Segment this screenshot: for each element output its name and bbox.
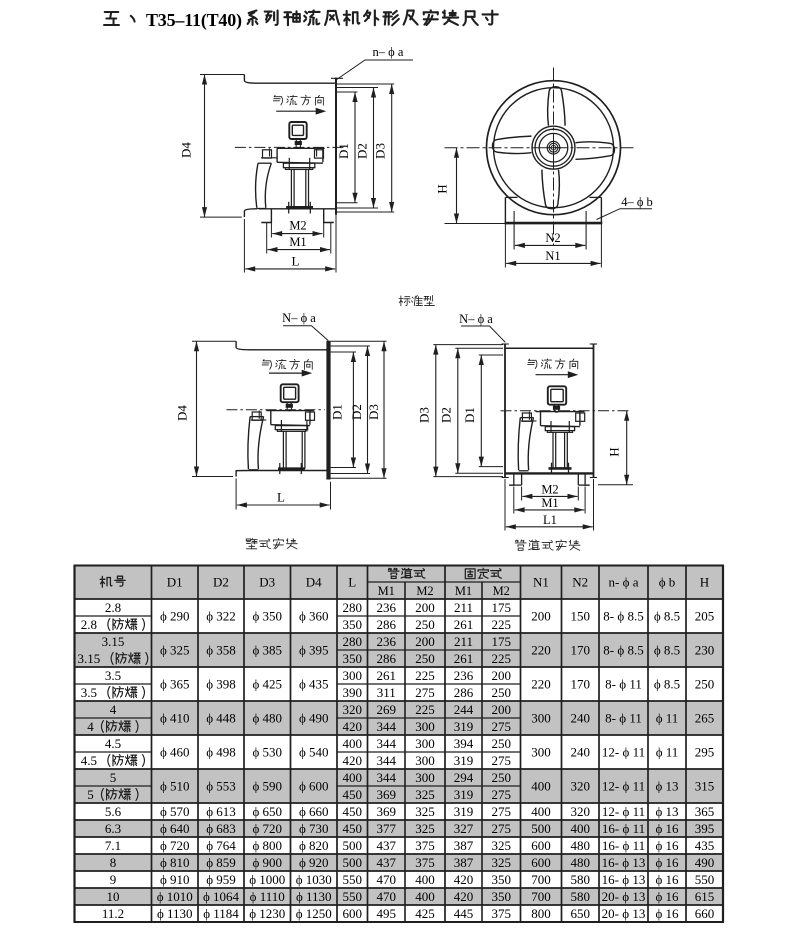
svg-text:2.8: 2.8: [105, 600, 121, 615]
svg-text:250: 250: [695, 677, 715, 692]
svg-text:ϕ 1184: ϕ 1184: [203, 906, 239, 921]
svg-text:3.15: 3.15: [78, 651, 101, 666]
svg-text:325: 325: [415, 787, 435, 802]
svg-text:ϕ 683: ϕ 683: [206, 821, 236, 836]
svg-text:ϕ 360: ϕ 360: [299, 609, 329, 624]
svg-text:175: 175: [492, 600, 512, 615]
svg-text:D1: D1: [330, 404, 345, 420]
svg-text:295: 295: [695, 745, 715, 760]
svg-text:ϕ 16: ϕ 16: [655, 821, 679, 836]
svg-text:11.2: 11.2: [102, 906, 124, 921]
svg-text:ϕ 650: ϕ 650: [252, 804, 282, 819]
svg-text:ϕ 730: ϕ 730: [299, 821, 329, 836]
svg-text:236: 236: [377, 600, 397, 615]
svg-text:280: 280: [343, 634, 363, 649]
svg-text:3.15: 3.15: [102, 634, 125, 649]
svg-text:ϕ 720: ϕ 720: [252, 821, 282, 836]
svg-text:D4: D4: [175, 405, 190, 421]
svg-text:ϕ 570: ϕ 570: [160, 804, 190, 819]
svg-text:5: 5: [87, 787, 94, 802]
svg-text:n- ϕ a: n- ϕ a: [609, 575, 639, 590]
svg-text:ϕ 1110: ϕ 1110: [250, 889, 285, 904]
svg-text:550: 550: [343, 889, 363, 904]
svg-text:ϕ 460: ϕ 460: [160, 745, 190, 760]
svg-text:294: 294: [454, 770, 474, 785]
svg-text:ϕ 8.5: ϕ 8.5: [654, 677, 680, 692]
svg-text:250: 250: [492, 770, 512, 785]
svg-text:550: 550: [695, 872, 715, 887]
svg-text:387: 387: [454, 855, 474, 870]
svg-text:ϕ 8.5: ϕ 8.5: [654, 609, 680, 624]
svg-text:ϕ 530: ϕ 530: [252, 745, 282, 760]
svg-text:ϕ b: ϕ b: [659, 575, 676, 590]
svg-text:H: H: [700, 575, 709, 590]
svg-text:300: 300: [415, 736, 435, 751]
svg-text:ϕ 660: ϕ 660: [299, 804, 329, 819]
svg-text:250: 250: [415, 651, 435, 666]
svg-text:ϕ 448: ϕ 448: [206, 711, 236, 726]
svg-text:240: 240: [571, 711, 591, 726]
svg-text:265: 265: [695, 711, 715, 726]
svg-text:ϕ 810: ϕ 810: [160, 855, 190, 870]
svg-text:5.6: 5.6: [105, 804, 122, 819]
svg-text:16- ϕ 11: 16- ϕ 11: [602, 838, 645, 853]
svg-text:344: 344: [377, 770, 397, 785]
svg-text:ϕ 590: ϕ 590: [252, 779, 282, 794]
svg-text:16- ϕ 13: 16- ϕ 13: [602, 872, 646, 887]
svg-text:8- ϕ 8.5: 8- ϕ 8.5: [603, 643, 643, 658]
svg-text:4: 4: [110, 702, 117, 717]
svg-text:350: 350: [492, 889, 512, 904]
svg-text:ϕ 1230: ϕ 1230: [249, 906, 285, 921]
svg-text:375: 375: [415, 838, 435, 853]
svg-text:ϕ 480: ϕ 480: [252, 711, 282, 726]
svg-text:ϕ 540: ϕ 540: [299, 745, 329, 760]
svg-text:344: 344: [377, 736, 397, 751]
svg-text:ϕ 720: ϕ 720: [160, 838, 190, 853]
svg-text:261: 261: [454, 617, 474, 632]
svg-text:ϕ 13: ϕ 13: [655, 779, 678, 794]
svg-text:M1: M1: [378, 584, 395, 598]
svg-text:450: 450: [343, 821, 363, 836]
svg-text:8- ϕ 11: 8- ϕ 11: [605, 677, 642, 692]
svg-text:M2: M2: [416, 584, 433, 598]
svg-text:320: 320: [571, 804, 591, 819]
svg-text:319: 319: [454, 787, 474, 802]
svg-text:ϕ 600: ϕ 600: [299, 779, 329, 794]
svg-text:450: 450: [343, 804, 363, 819]
svg-text:550: 550: [343, 872, 363, 887]
svg-text:275: 275: [492, 821, 512, 836]
svg-text:225: 225: [492, 651, 512, 666]
svg-text:ϕ 290: ϕ 290: [160, 609, 190, 624]
svg-text:D2: D2: [355, 143, 370, 159]
svg-text:394: 394: [454, 736, 474, 751]
svg-text:311: 311: [377, 685, 396, 700]
svg-text:300: 300: [531, 711, 551, 726]
svg-text:ϕ 365: ϕ 365: [160, 677, 190, 692]
svg-text:300: 300: [343, 668, 363, 683]
svg-text:369: 369: [377, 804, 397, 819]
svg-text:230: 230: [695, 643, 715, 658]
svg-text:660: 660: [695, 906, 715, 921]
svg-text:275: 275: [492, 787, 512, 802]
svg-text:390: 390: [343, 685, 363, 700]
svg-text:D3: D3: [366, 404, 381, 420]
svg-text:150: 150: [571, 609, 591, 624]
svg-text:387: 387: [454, 838, 474, 853]
svg-text:ϕ 910: ϕ 910: [160, 872, 190, 887]
svg-text:437: 437: [377, 838, 397, 853]
svg-text:ϕ 11: ϕ 11: [656, 745, 679, 760]
svg-text:12- ϕ 11: 12- ϕ 11: [602, 804, 645, 819]
svg-text:325: 325: [415, 804, 435, 819]
svg-text:8- ϕ 11: 8- ϕ 11: [605, 711, 642, 726]
svg-text:211: 211: [454, 600, 473, 615]
svg-text:ϕ 490: ϕ 490: [299, 711, 329, 726]
svg-text:M1: M1: [541, 496, 558, 510]
svg-text:375: 375: [492, 906, 512, 921]
svg-text:344: 344: [377, 753, 397, 768]
svg-text:ϕ 425: ϕ 425: [252, 677, 282, 692]
svg-text:200: 200: [415, 600, 435, 615]
svg-text:325: 325: [492, 838, 512, 853]
svg-text:225: 225: [492, 617, 512, 632]
svg-text:300: 300: [415, 753, 435, 768]
svg-text:ϕ 16: ϕ 16: [655, 855, 679, 870]
svg-text:700: 700: [531, 889, 551, 904]
svg-text:395: 395: [695, 821, 715, 836]
svg-text:ϕ 800: ϕ 800: [252, 838, 282, 853]
svg-text:9: 9: [110, 872, 117, 887]
svg-text:ϕ 395: ϕ 395: [299, 643, 329, 658]
svg-text:20- ϕ 13: 20- ϕ 13: [602, 906, 646, 921]
svg-text:480: 480: [571, 838, 591, 853]
svg-text:ϕ 859: ϕ 859: [206, 855, 236, 870]
svg-text:175: 175: [492, 634, 512, 649]
svg-text:5: 5: [110, 770, 117, 785]
svg-text:M2: M2: [541, 483, 558, 497]
svg-text:4.5: 4.5: [81, 753, 97, 768]
svg-text:8- ϕ 8.5: 8- ϕ 8.5: [603, 609, 643, 624]
svg-text:ϕ 1130: ϕ 1130: [296, 889, 332, 904]
svg-text:3.5: 3.5: [81, 685, 97, 700]
svg-text:580: 580: [571, 872, 591, 887]
svg-text:M1: M1: [455, 584, 472, 598]
svg-text:377: 377: [377, 821, 397, 836]
svg-text:400: 400: [415, 872, 435, 887]
svg-text:344: 344: [377, 719, 397, 734]
svg-text:ϕ 385: ϕ 385: [252, 643, 282, 658]
svg-text:N1: N1: [533, 575, 549, 590]
svg-text:600: 600: [531, 855, 551, 870]
svg-text:400: 400: [571, 821, 591, 836]
svg-text:220: 220: [531, 677, 551, 692]
svg-text:16- ϕ 11: 16- ϕ 11: [602, 821, 645, 836]
svg-text:800: 800: [531, 906, 551, 921]
svg-text:10: 10: [107, 889, 120, 904]
svg-text:286: 286: [454, 685, 474, 700]
svg-text:ϕ 1130: ϕ 1130: [157, 906, 193, 921]
svg-text:ϕ 820: ϕ 820: [299, 838, 329, 853]
svg-text:200: 200: [531, 609, 551, 624]
svg-text:400: 400: [343, 770, 363, 785]
svg-text:261: 261: [454, 651, 474, 666]
svg-text:470: 470: [377, 889, 397, 904]
svg-text:236: 236: [377, 634, 397, 649]
svg-text:D1: D1: [462, 407, 477, 423]
svg-text:6.3: 6.3: [105, 821, 121, 836]
svg-text:600: 600: [531, 838, 551, 853]
svg-text:300: 300: [415, 770, 435, 785]
svg-text:T35–11(T40): T35–11(T40): [146, 10, 242, 31]
svg-text:170: 170: [571, 643, 591, 658]
svg-text:225: 225: [415, 702, 435, 717]
svg-text:490: 490: [695, 855, 715, 870]
svg-text:H: H: [607, 447, 622, 456]
svg-text:445: 445: [454, 906, 474, 921]
svg-text:ϕ 325: ϕ 325: [160, 643, 190, 658]
svg-text:20- ϕ 13: 20- ϕ 13: [602, 889, 646, 904]
svg-text:320: 320: [571, 779, 591, 794]
svg-text:M2: M2: [289, 219, 306, 233]
svg-text:D2: D2: [349, 404, 364, 420]
svg-text:327: 327: [454, 821, 474, 836]
svg-text:320: 320: [343, 702, 363, 717]
svg-text:12- ϕ 11: 12- ϕ 11: [602, 745, 645, 760]
svg-text:275: 275: [492, 719, 512, 734]
svg-text:470: 470: [377, 872, 397, 887]
svg-text:L: L: [348, 575, 356, 590]
svg-text:319: 319: [454, 804, 474, 819]
svg-text:D3: D3: [416, 407, 431, 423]
svg-text:8: 8: [110, 855, 117, 870]
svg-text:435: 435: [695, 838, 715, 853]
svg-text:M1: M1: [289, 235, 306, 249]
svg-text:ϕ 1030: ϕ 1030: [296, 872, 332, 887]
svg-text:240: 240: [571, 745, 591, 760]
svg-text:350: 350: [492, 872, 512, 887]
svg-text:269: 269: [377, 702, 397, 717]
svg-text:L: L: [292, 254, 300, 269]
svg-text:ϕ 900: ϕ 900: [252, 855, 282, 870]
svg-text:ϕ 13: ϕ 13: [655, 804, 678, 819]
svg-text:615: 615: [695, 889, 715, 904]
svg-text:280: 280: [343, 600, 363, 615]
svg-text:580: 580: [571, 889, 591, 904]
svg-text:ϕ 959: ϕ 959: [206, 872, 236, 887]
svg-text:ϕ 1010: ϕ 1010: [157, 889, 193, 904]
svg-text:236: 236: [454, 668, 474, 683]
svg-text:ϕ 398: ϕ 398: [206, 677, 236, 692]
svg-text:450: 450: [343, 787, 363, 802]
svg-text:400: 400: [531, 779, 551, 794]
svg-text:200: 200: [492, 702, 512, 717]
svg-text:400: 400: [415, 889, 435, 904]
svg-text:286: 286: [377, 617, 397, 632]
svg-text:250: 250: [492, 685, 512, 700]
svg-text:244: 244: [454, 702, 474, 717]
svg-text:N2: N2: [572, 575, 588, 590]
svg-text:ϕ 358: ϕ 358: [206, 643, 236, 658]
svg-text:425: 425: [415, 906, 435, 921]
svg-text:D2: D2: [438, 407, 453, 423]
svg-text:3.5: 3.5: [105, 668, 121, 683]
svg-text:L1: L1: [543, 513, 557, 527]
svg-text:ϕ 322: ϕ 322: [206, 609, 236, 624]
svg-text:N1: N1: [545, 249, 560, 263]
svg-text:ϕ 435: ϕ 435: [299, 677, 329, 692]
svg-text:M2: M2: [493, 584, 510, 598]
svg-text:2.8: 2.8: [81, 617, 97, 632]
svg-text:ϕ 410: ϕ 410: [160, 711, 190, 726]
svg-text:600: 600: [343, 906, 363, 921]
svg-text:n– ϕ a: n– ϕ a: [373, 45, 404, 59]
svg-text:315: 315: [695, 779, 715, 794]
svg-text:ϕ 8.5: ϕ 8.5: [654, 643, 680, 658]
svg-text:4.5: 4.5: [105, 736, 121, 751]
svg-text:ϕ 1000: ϕ 1000: [249, 872, 285, 887]
svg-text:200: 200: [415, 634, 435, 649]
svg-text:220: 220: [531, 643, 551, 658]
svg-text:400: 400: [531, 804, 551, 819]
svg-text:N2: N2: [545, 231, 560, 245]
svg-text:D4: D4: [306, 575, 322, 590]
svg-text:319: 319: [454, 719, 474, 734]
svg-text:350: 350: [343, 651, 363, 666]
svg-text:ϕ 613: ϕ 613: [206, 804, 236, 819]
svg-text:ϕ 350: ϕ 350: [252, 609, 282, 624]
svg-text:225: 225: [415, 668, 435, 683]
svg-text:D4: D4: [179, 142, 194, 158]
svg-text:4– ϕ b: 4– ϕ b: [621, 195, 653, 209]
svg-text:200: 200: [492, 668, 512, 683]
svg-text:420: 420: [454, 872, 474, 887]
svg-text:400: 400: [343, 736, 363, 751]
svg-text:ϕ 1250: ϕ 1250: [296, 906, 332, 921]
svg-text:250: 250: [415, 617, 435, 632]
svg-text:420: 420: [454, 889, 474, 904]
svg-text:250: 250: [492, 736, 512, 751]
svg-text:D3: D3: [259, 575, 275, 590]
svg-text:N– ϕ a: N– ϕ a: [282, 311, 316, 325]
svg-text:D2: D2: [213, 575, 229, 590]
svg-text:12- ϕ 11: 12- ϕ 11: [602, 779, 645, 794]
svg-text:500: 500: [531, 821, 551, 836]
svg-text:205: 205: [695, 609, 715, 624]
svg-text:ϕ 16: ϕ 16: [655, 872, 679, 887]
svg-text:420: 420: [343, 719, 363, 734]
svg-text:ϕ 16: ϕ 16: [655, 838, 679, 853]
svg-text:ϕ 920: ϕ 920: [299, 855, 329, 870]
svg-text:ϕ 553: ϕ 553: [206, 779, 236, 794]
svg-text:ϕ 16: ϕ 16: [655, 889, 679, 904]
svg-text:D1: D1: [336, 143, 351, 159]
svg-text:300: 300: [415, 719, 435, 734]
svg-text:500: 500: [343, 838, 363, 853]
svg-text:7.1: 7.1: [105, 838, 121, 853]
svg-text:ϕ 498: ϕ 498: [206, 745, 236, 760]
svg-text:L: L: [277, 490, 285, 505]
svg-text:480: 480: [571, 855, 591, 870]
svg-text:ϕ 640: ϕ 640: [160, 821, 190, 836]
svg-text:ϕ 510: ϕ 510: [160, 779, 190, 794]
svg-text:500: 500: [343, 855, 363, 870]
svg-text:325: 325: [415, 821, 435, 836]
svg-text:261: 261: [377, 668, 397, 683]
svg-text:ϕ 764: ϕ 764: [206, 838, 236, 853]
svg-text:286: 286: [377, 651, 397, 666]
svg-text:325: 325: [492, 855, 512, 870]
svg-text:211: 211: [454, 634, 473, 649]
svg-text:ϕ 11: ϕ 11: [656, 711, 679, 726]
svg-text:375: 375: [415, 855, 435, 870]
svg-text:275: 275: [492, 753, 512, 768]
svg-text:N– ϕ a: N– ϕ a: [459, 312, 493, 326]
svg-text:D3: D3: [373, 143, 388, 159]
svg-text:ϕ 1064: ϕ 1064: [203, 889, 240, 904]
svg-text:420: 420: [343, 753, 363, 768]
svg-text:275: 275: [492, 804, 512, 819]
svg-text:437: 437: [377, 855, 397, 870]
svg-text:16- ϕ 13: 16- ϕ 13: [602, 855, 646, 870]
svg-text:D1: D1: [167, 575, 183, 590]
svg-text:300: 300: [531, 745, 551, 760]
svg-text:365: 365: [695, 804, 715, 819]
svg-text:4: 4: [87, 719, 94, 734]
svg-text:170: 170: [571, 677, 591, 692]
svg-text:H: H: [435, 184, 450, 193]
svg-text:319: 319: [454, 753, 474, 768]
svg-text:369: 369: [377, 787, 397, 802]
svg-text:700: 700: [531, 872, 551, 887]
svg-text:650: 650: [571, 906, 591, 921]
svg-text:495: 495: [377, 906, 397, 921]
svg-text:ϕ 16: ϕ 16: [655, 906, 679, 921]
svg-text:350: 350: [343, 617, 363, 632]
svg-text:275: 275: [415, 685, 435, 700]
